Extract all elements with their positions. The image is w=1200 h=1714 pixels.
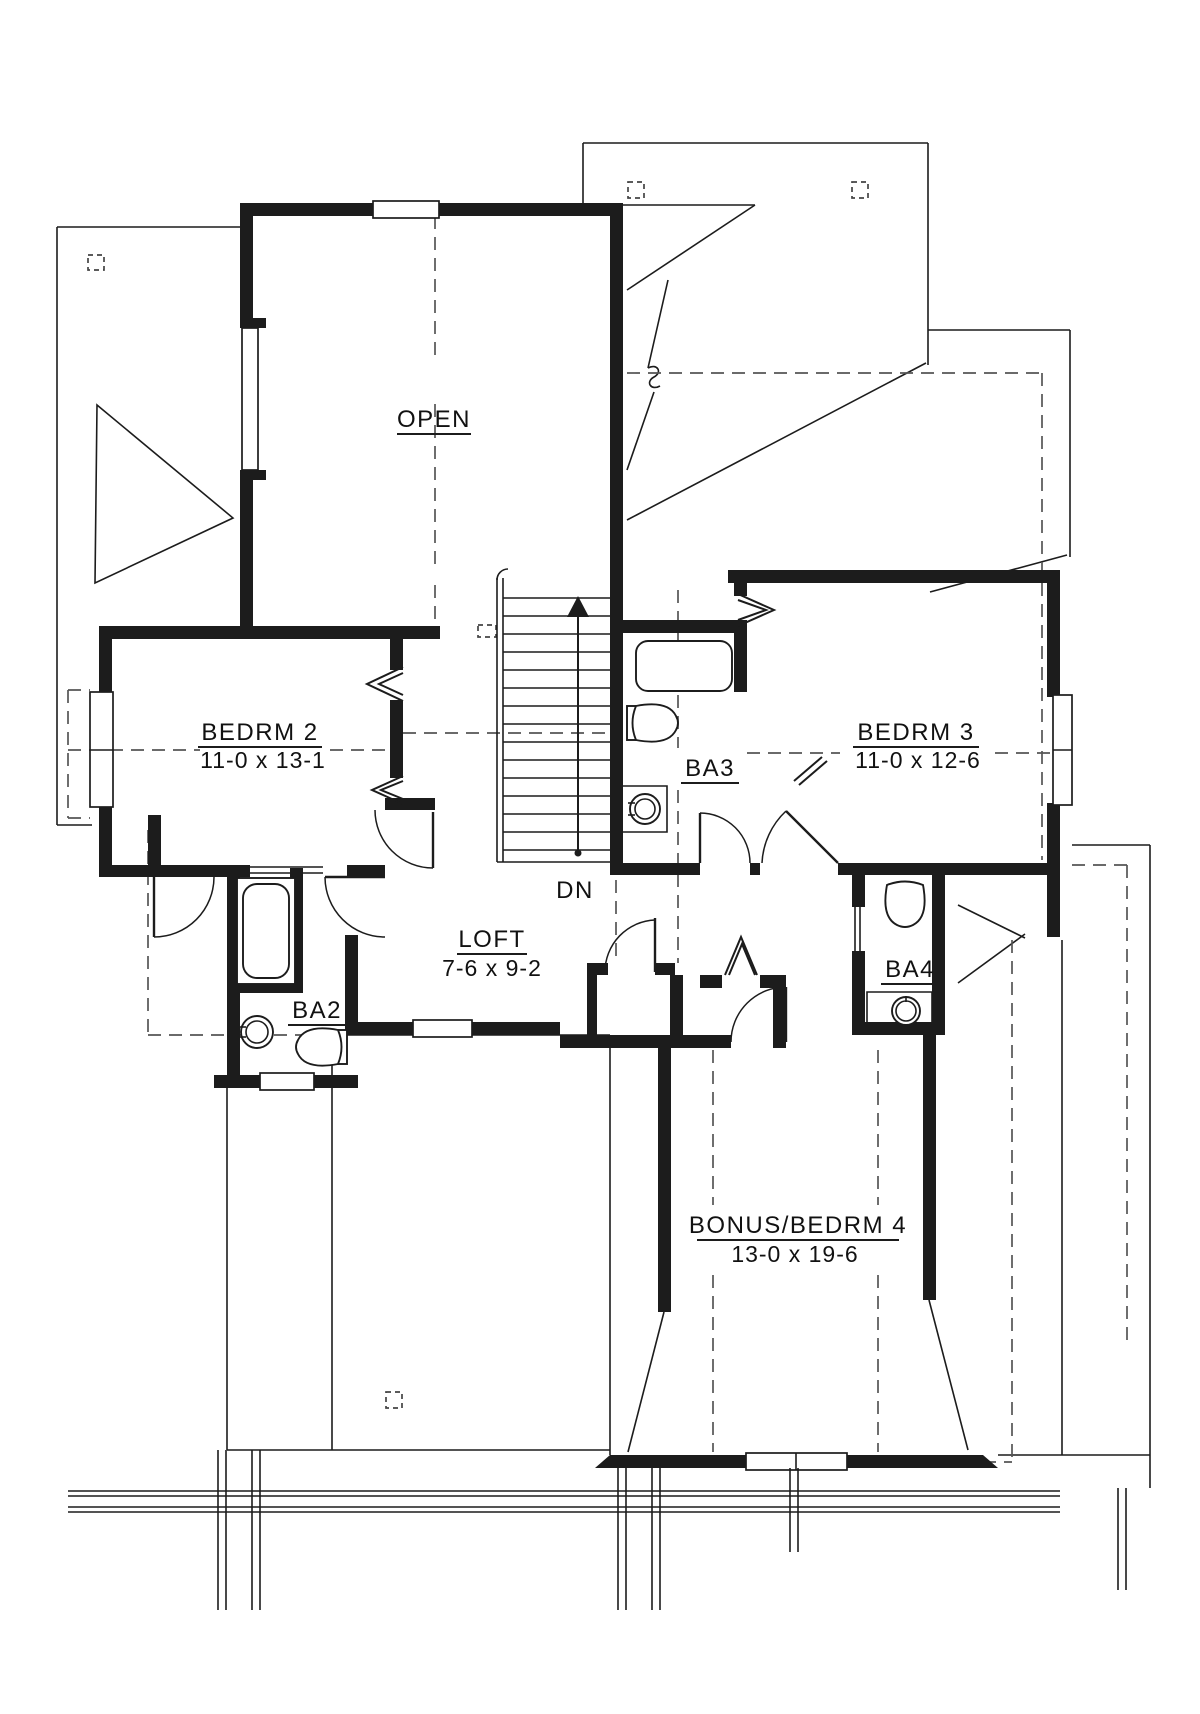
- window-loft: [413, 1020, 472, 1037]
- room-label-open: OPEN: [397, 406, 471, 433]
- window-ba2: [260, 1073, 314, 1090]
- bathtub-ba3-icon: [636, 641, 732, 691]
- door-ba2: [325, 877, 385, 937]
- bathtub-ba2-icon: [237, 878, 295, 984]
- sink-ba3-icon: [623, 786, 667, 832]
- room-label-bedrm2: BEDRM 2: [201, 719, 318, 746]
- door-bedrm2: [375, 810, 433, 868]
- stair-direction-arrow: [567, 596, 589, 857]
- stairs-down-label: DN: [556, 877, 594, 904]
- door-ba4-pocket: [855, 907, 860, 951]
- room-dims-bedrm3: 11-0 x 12-6: [855, 747, 981, 773]
- door-bedrm3: [762, 811, 838, 863]
- window-open-left: [242, 328, 258, 470]
- sink-ba4-icon: [867, 992, 932, 1025]
- door-exterior-left: [154, 877, 214, 937]
- door-loft-closet: [605, 918, 655, 972]
- room-label-ba2: BA2: [292, 997, 342, 1024]
- room-dims-loft: 7-6 x 9-2: [442, 955, 542, 981]
- room-label-loft: LOFT: [458, 926, 525, 953]
- floor-plan-canvas: OPEN BEDRM 2 11-0 x 13-1 BEDRM 3 11-0 x …: [0, 0, 1200, 1714]
- stair-treads: [503, 598, 610, 850]
- room-label-ba3: BA3: [685, 755, 735, 782]
- toilet-ba3-icon: [627, 704, 678, 741]
- sink-ba2-icon: [239, 1016, 273, 1048]
- opening-chevrons: [367, 594, 827, 975]
- room-label-ba4: BA4: [885, 956, 935, 983]
- toilet-ba2-icon: [296, 1028, 347, 1065]
- deck-railing: [68, 1450, 1126, 1610]
- room-label-bonus: BONUS/BEDRM 4: [689, 1212, 907, 1239]
- roof-outlines: [57, 143, 1150, 1488]
- toilet-ba4-icon: [885, 882, 924, 928]
- staircase: [497, 569, 610, 862]
- window-open-top: [373, 201, 439, 218]
- room-labels: OPEN BEDRM 2 11-0 x 13-1 BEDRM 3 11-0 x …: [198, 406, 981, 1267]
- floor-plan-page: OPEN BEDRM 2 11-0 x 13-1 BEDRM 3 11-0 x …: [0, 0, 1200, 1714]
- room-dims-bedrm2: 11-0 x 13-1: [200, 747, 326, 773]
- door-ba3: [700, 813, 750, 863]
- room-label-bedrm3: BEDRM 3: [857, 719, 974, 746]
- room-dims-bonus: 13-0 x 19-6: [731, 1241, 858, 1267]
